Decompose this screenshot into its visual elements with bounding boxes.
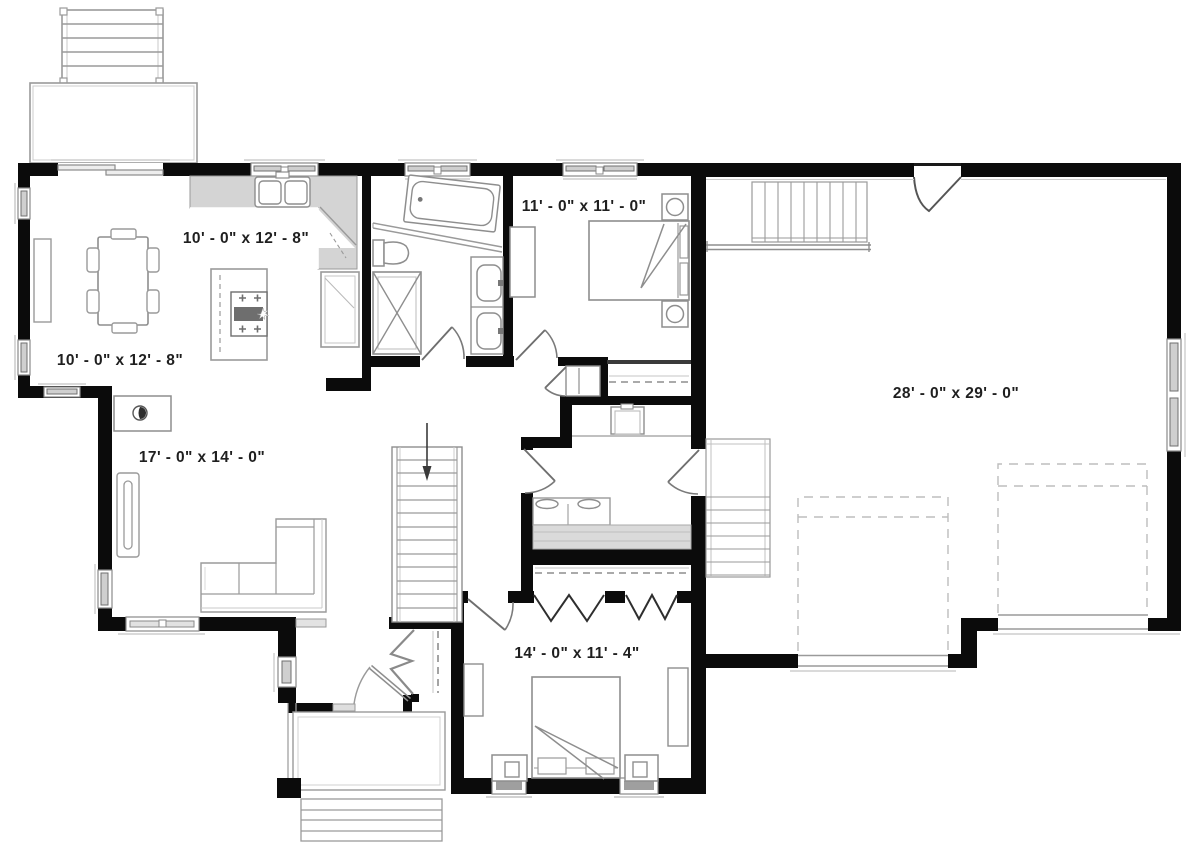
svg-text:10' - 0" x 12' - 8": 10' - 0" x 12' - 8" (183, 230, 309, 247)
svg-text:11' - 0" x 11' - 0": 11' - 0" x 11' - 0" (522, 198, 646, 215)
svg-text:14' - 0" x 11' - 4": 14' - 0" x 11' - 4" (514, 645, 639, 662)
svg-text:28' - 0" x 29' - 0": 28' - 0" x 29' - 0" (893, 385, 1019, 402)
svg-text:17' - 0" x 14' - 0": 17' - 0" x 14' - 0" (139, 449, 265, 466)
svg-text:10' - 0" x 12' - 8": 10' - 0" x 12' - 8" (57, 352, 183, 369)
